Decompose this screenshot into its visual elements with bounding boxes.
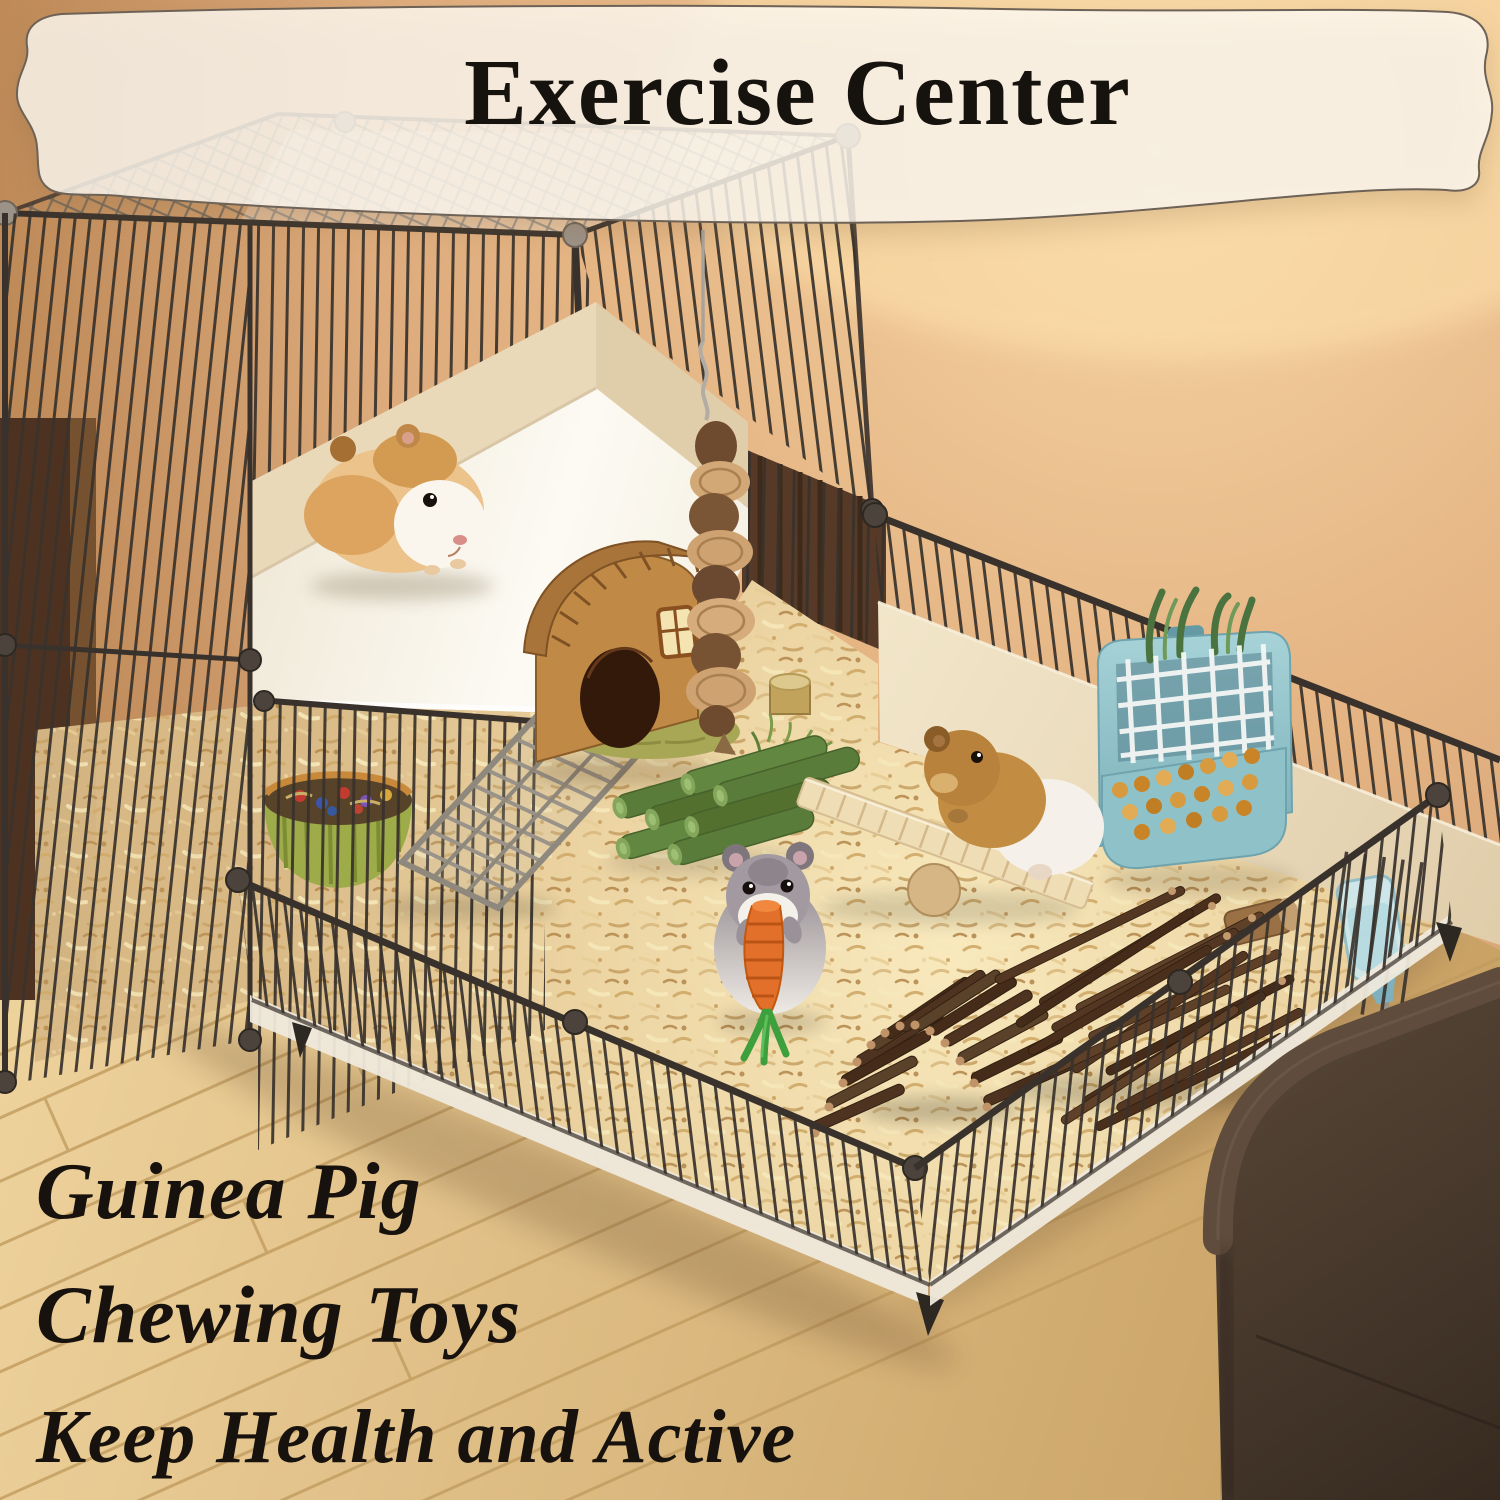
banner-title: Exercise Center bbox=[0, 44, 1500, 143]
product-image: Exercise Center Guinea Pig Chewing Toys … bbox=[0, 0, 1500, 1500]
pig-eye bbox=[423, 493, 437, 507]
caption-keep-health: Keep Health and Active bbox=[36, 1396, 796, 1480]
pig-ear bbox=[330, 436, 356, 462]
caption-chewing-toys: Chewing Toys bbox=[36, 1270, 521, 1360]
tree-stump bbox=[770, 674, 810, 714]
seesaw-ball bbox=[908, 864, 960, 916]
caption-guinea-pig: Guinea Pig bbox=[36, 1148, 422, 1236]
house-door bbox=[580, 648, 660, 748]
pig-nose bbox=[453, 535, 467, 545]
